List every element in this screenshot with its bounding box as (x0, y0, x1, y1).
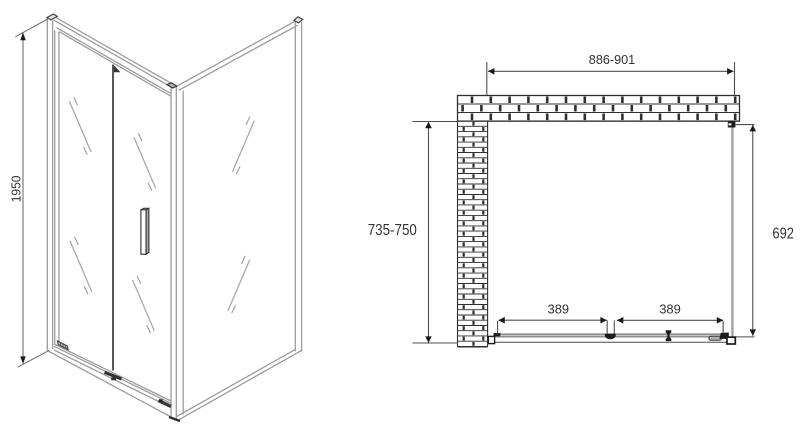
svg-text:1950: 1950 (9, 176, 24, 203)
svg-text:692: 692 (772, 225, 794, 242)
svg-text:389: 389 (659, 301, 681, 316)
svg-text:886-901: 886-901 (589, 53, 635, 67)
svg-text:389: 389 (548, 301, 570, 316)
svg-text:735-750: 735-750 (368, 222, 417, 239)
